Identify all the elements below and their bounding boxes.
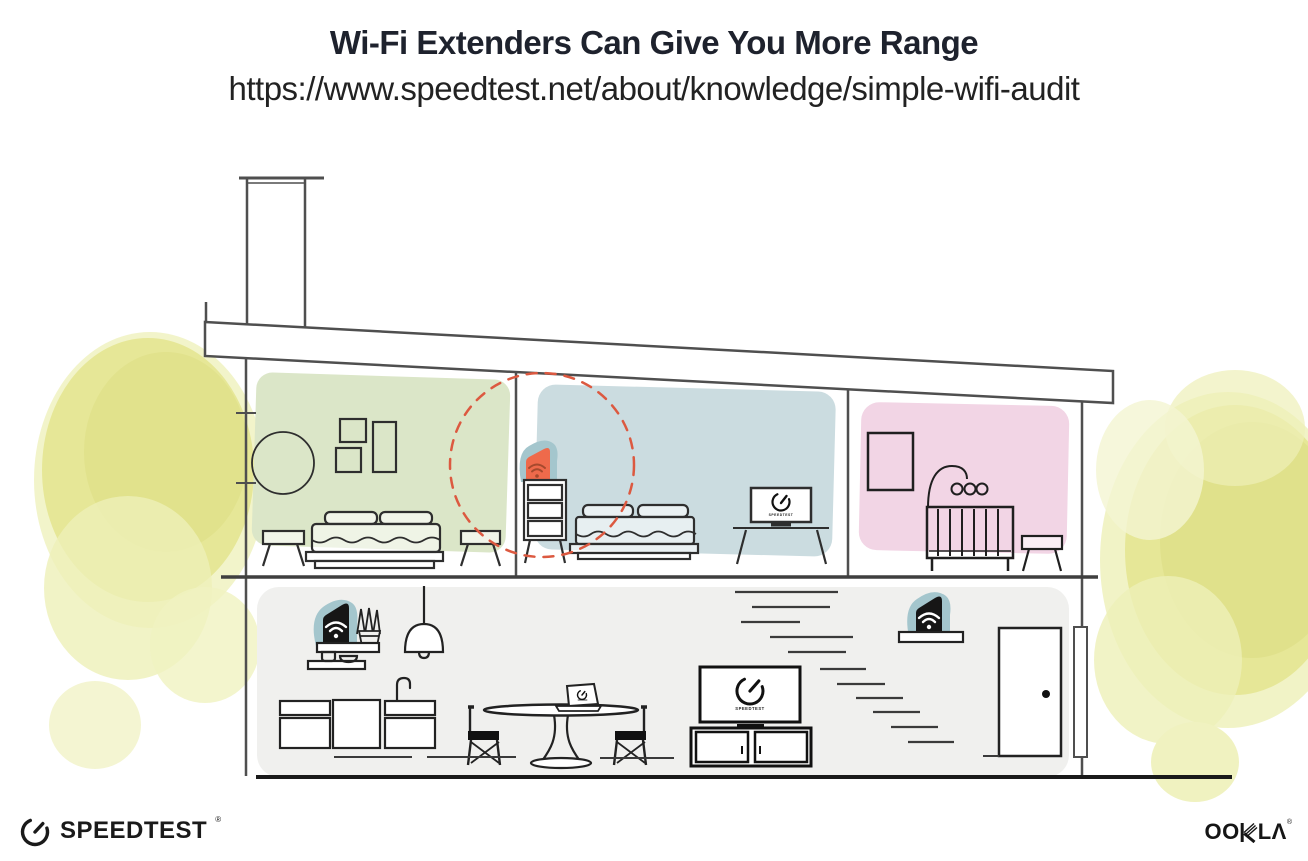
ookla-k-glyph: [1240, 820, 1258, 843]
dresser: [524, 480, 566, 563]
living-room-tv: SPEEDTEST: [700, 667, 800, 728]
front-door: [999, 628, 1061, 756]
speedtest-wordmark: SPEEDTEST: [60, 817, 207, 845]
pillow: [380, 512, 432, 524]
media-console: [691, 728, 811, 766]
bed: [306, 512, 443, 568]
right-bush: [1094, 370, 1308, 802]
speedtest-logo: SPEEDTEST ®: [18, 814, 221, 848]
wall-shelf: [317, 643, 379, 652]
pillow: [325, 512, 377, 524]
chimney: [239, 178, 324, 328]
left-bush: [34, 332, 266, 769]
ookla-trademark: ®: [1287, 819, 1292, 826]
wifi-extender-upstairs: [520, 440, 558, 482]
nursery-bg: [858, 402, 1069, 554]
pillow: [583, 505, 633, 517]
hallway-shelf: [899, 632, 963, 642]
infographic-page: Wi-Fi Extenders Can Give You More Range …: [0, 0, 1308, 861]
ookla-la: LΛ: [1258, 820, 1287, 843]
nightstand: [263, 531, 304, 566]
door-knob: [1042, 690, 1050, 698]
bed: [570, 505, 698, 559]
tv-screen-label: SPEEDTEST: [735, 706, 764, 711]
pillow: [638, 505, 688, 517]
tv-screen-label: SPEEDTEST: [769, 513, 794, 517]
door-sidelight: [1074, 627, 1087, 757]
ookla-logo: OO LΛ ®: [1204, 820, 1292, 843]
ookla-oo: OO: [1204, 820, 1239, 843]
speedtest-trademark: ®: [215, 815, 221, 824]
house-illustration: SPEEDTEST: [0, 0, 1308, 861]
speedtest-gauge-icon: [18, 814, 52, 848]
